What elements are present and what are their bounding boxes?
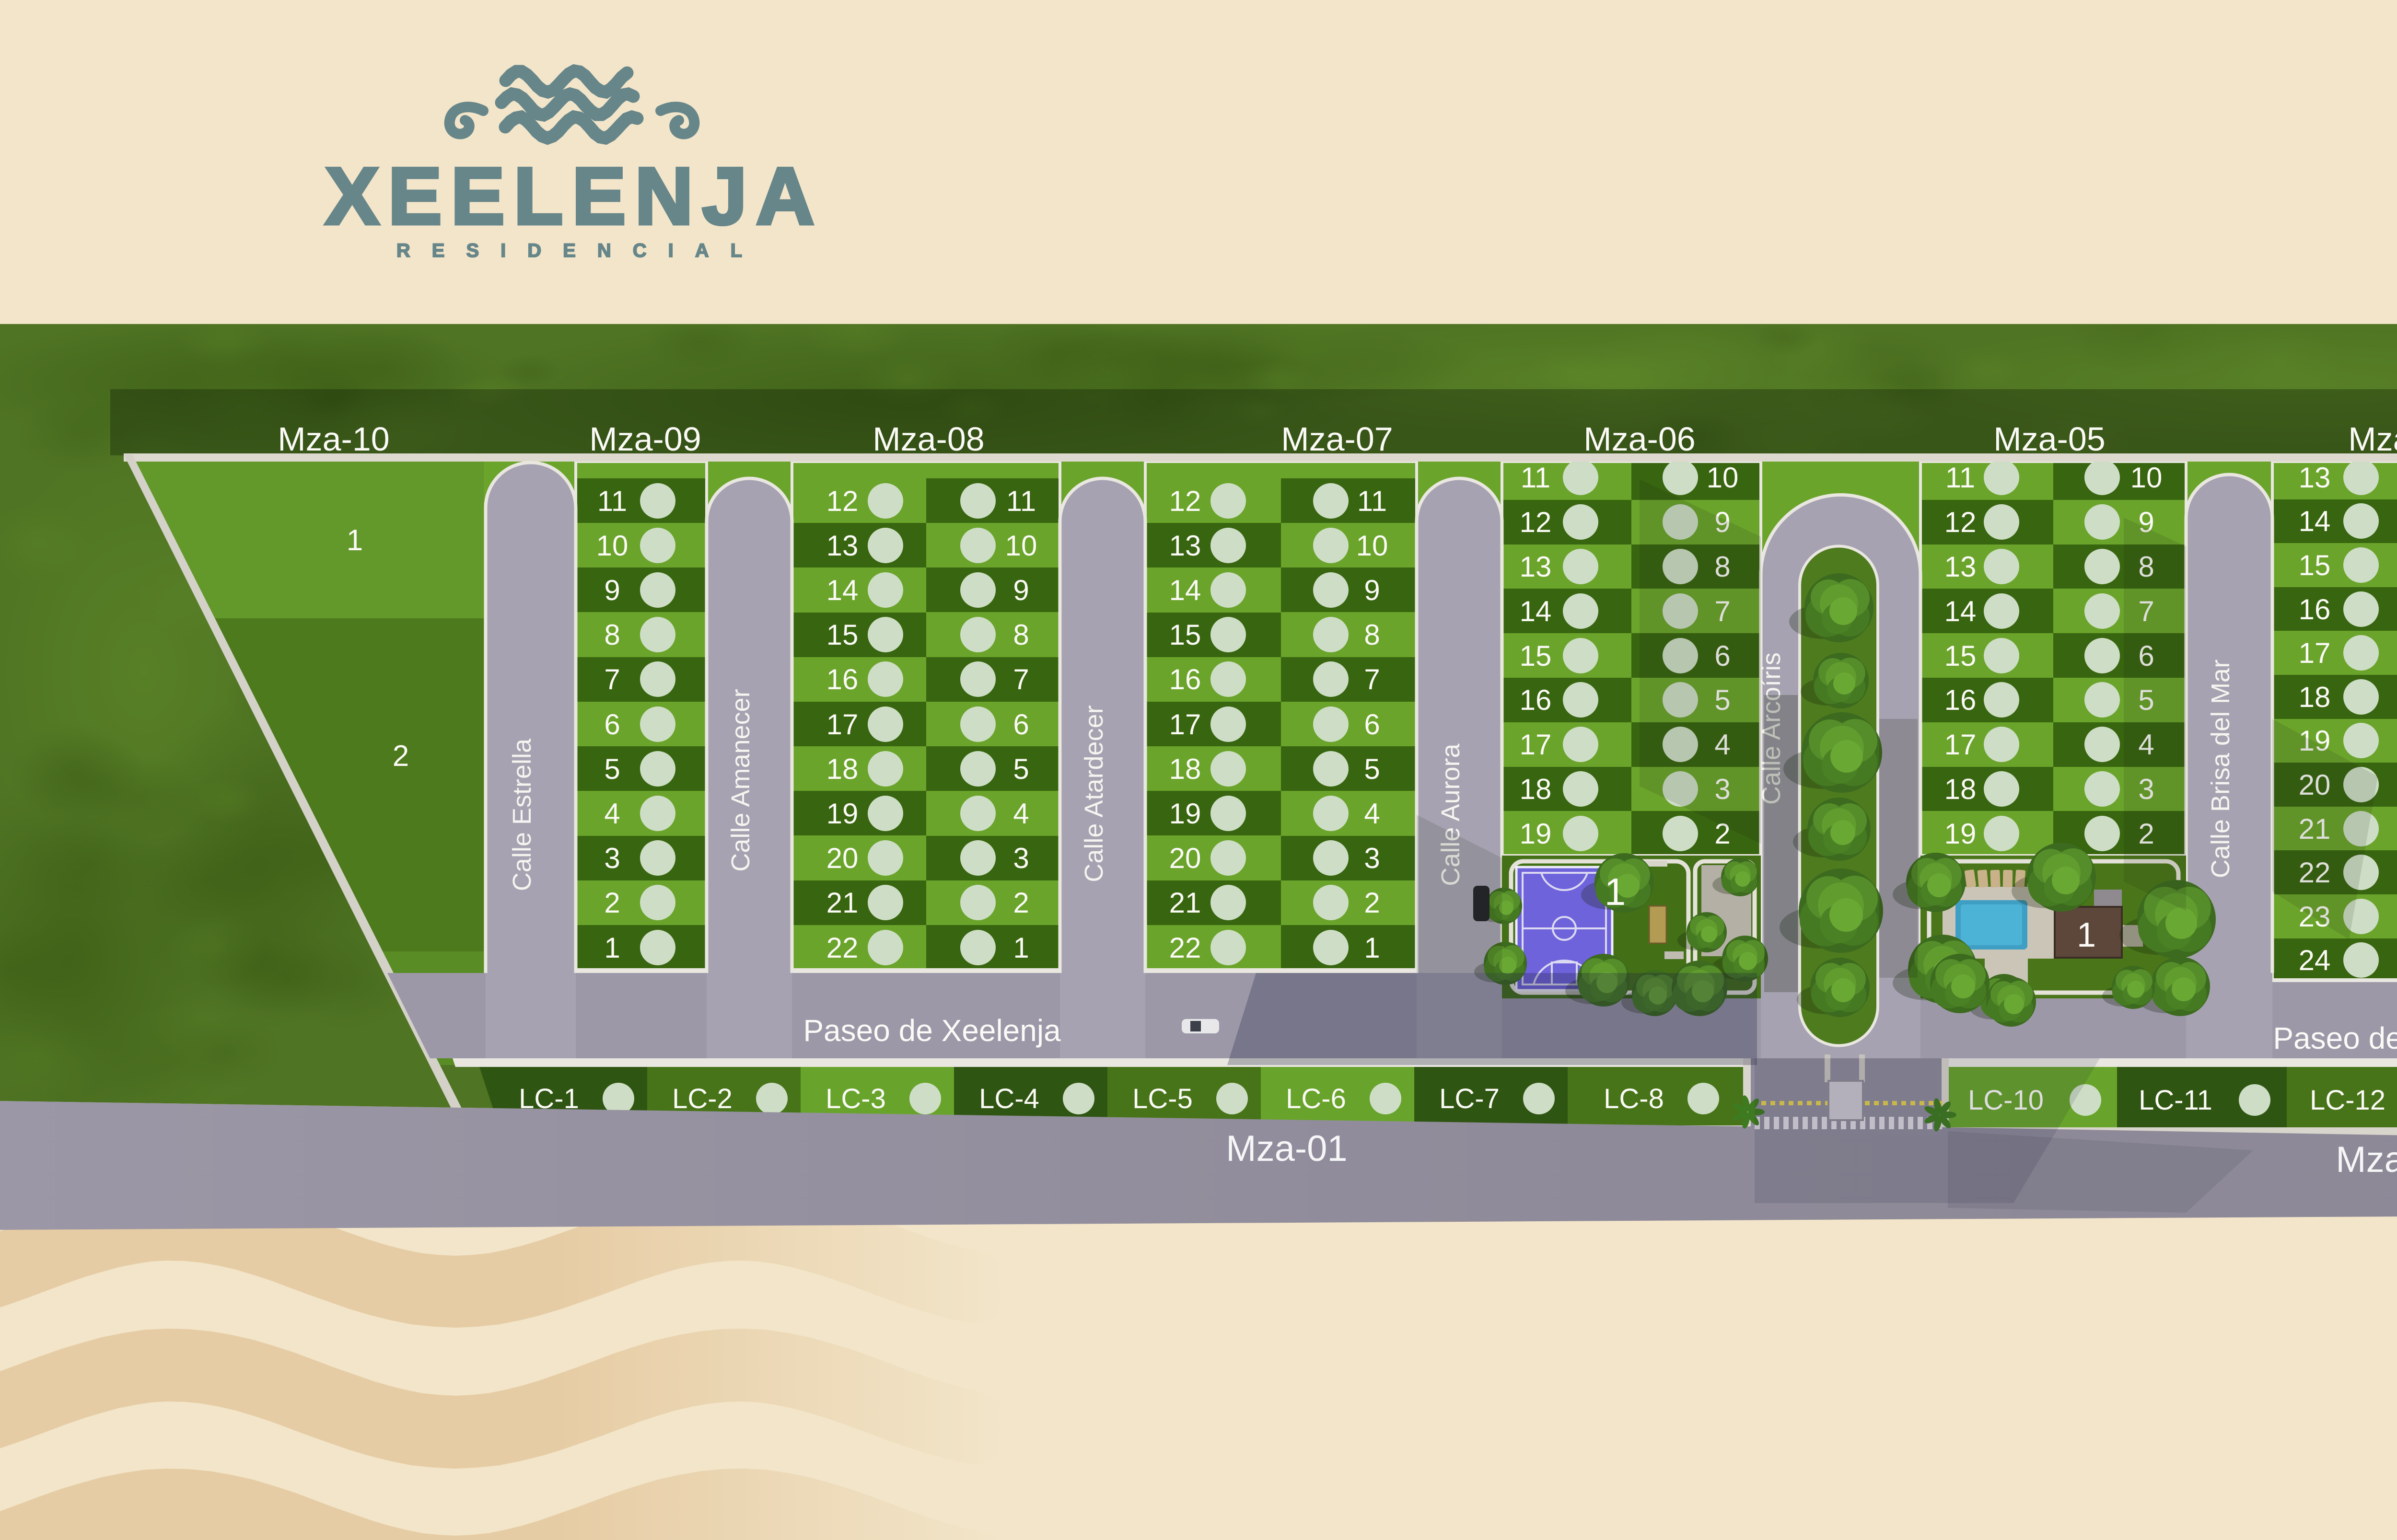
- svg-text:XEELENJA: XEELENJA: [326, 151, 824, 241]
- svg-text:RESIDENCIAL: RESIDENCIAL: [396, 240, 764, 261]
- svg-text:Mza-01: Mza-01: [1226, 1128, 1347, 1169]
- svg-text:Paseo de Xeelenja: Paseo de Xeelenja: [803, 1013, 1061, 1048]
- svg-text:Paseo de Xeelenja: Paseo de Xeelenja: [2273, 1021, 2397, 1055]
- svg-text:Mza-01: Mza-01: [2336, 1139, 2397, 1180]
